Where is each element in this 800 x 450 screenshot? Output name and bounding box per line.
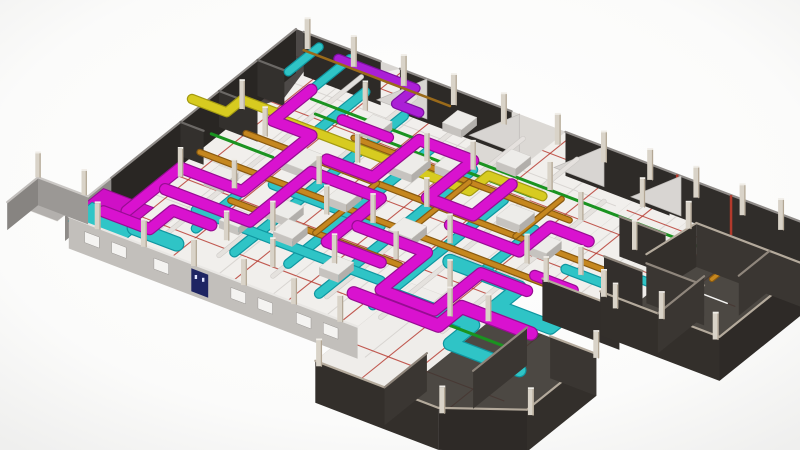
bim-model-viewport[interactable] <box>0 0 800 450</box>
isometric-building-mep-render <box>0 0 800 450</box>
